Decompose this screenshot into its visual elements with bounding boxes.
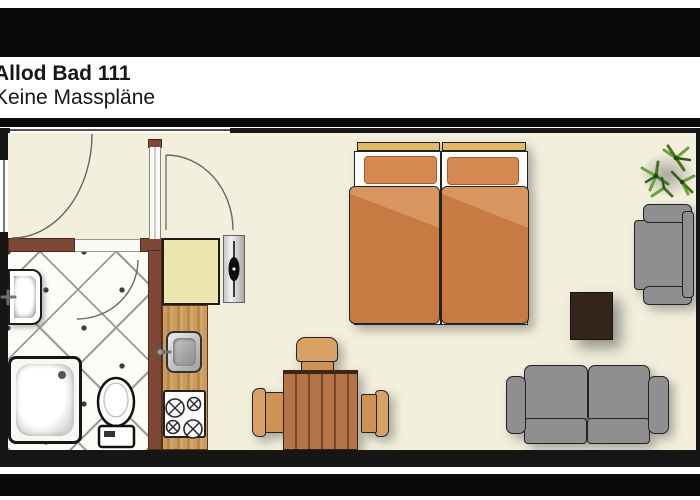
sofa-seat-right (587, 418, 650, 444)
chair-left-back (252, 388, 266, 437)
chair-right-seat (361, 394, 377, 433)
dining-table (283, 370, 358, 450)
shower-tray-inner (16, 364, 74, 436)
bathroom-door-threshold (75, 239, 140, 252)
wall-brown-kitchen (148, 250, 162, 450)
washbasin-basin (14, 276, 36, 318)
wall-left-upper (0, 128, 8, 158)
kitchen-sink (166, 331, 202, 373)
wall-bottom (0, 450, 700, 467)
duvet-right (441, 186, 529, 324)
armchair (633, 204, 694, 305)
wall-brown-hall-south (8, 238, 75, 252)
coffee-table (570, 292, 613, 340)
sofa-armrest-right (648, 376, 669, 434)
sofa-back-left (524, 365, 588, 420)
shower-tray (8, 356, 82, 444)
sofa-seat-left (524, 418, 587, 444)
chair-top-back (296, 337, 338, 362)
kitchen-sink-basin (173, 338, 196, 366)
wall-top (230, 128, 700, 133)
bed-headboard-right (442, 142, 526, 151)
twin-beds (348, 140, 530, 328)
duvet-left-fold (350, 187, 439, 323)
sofa-armrest-left (506, 376, 526, 434)
pillow-left (364, 156, 437, 184)
sofa (506, 365, 669, 445)
left-window (0, 158, 8, 234)
bed-headboard-left (357, 142, 440, 151)
stove (163, 390, 206, 438)
pillow-right (447, 157, 519, 185)
floor-plan-page: Allod Bad 111 Keine Masspläne (0, 0, 700, 500)
sofa-back-right (588, 365, 650, 420)
floor-plan (0, 0, 700, 500)
bottom-black-bar (0, 474, 700, 496)
chair-right-back (375, 390, 389, 437)
duvet-left (349, 186, 440, 324)
chair-left-seat (265, 392, 284, 433)
armchair-backrest (682, 211, 694, 298)
duvet-right-fold (442, 187, 528, 323)
tall-cabinet-handle-unit (223, 235, 245, 303)
entry-partition (149, 147, 161, 239)
armchair-seat (634, 220, 686, 290)
dining-set (250, 335, 392, 450)
washbasin (8, 269, 42, 325)
plant-shadow (638, 152, 696, 198)
wall-right (696, 128, 700, 467)
kitchen-cabinet (162, 238, 220, 305)
wall-left-lower (0, 234, 8, 467)
